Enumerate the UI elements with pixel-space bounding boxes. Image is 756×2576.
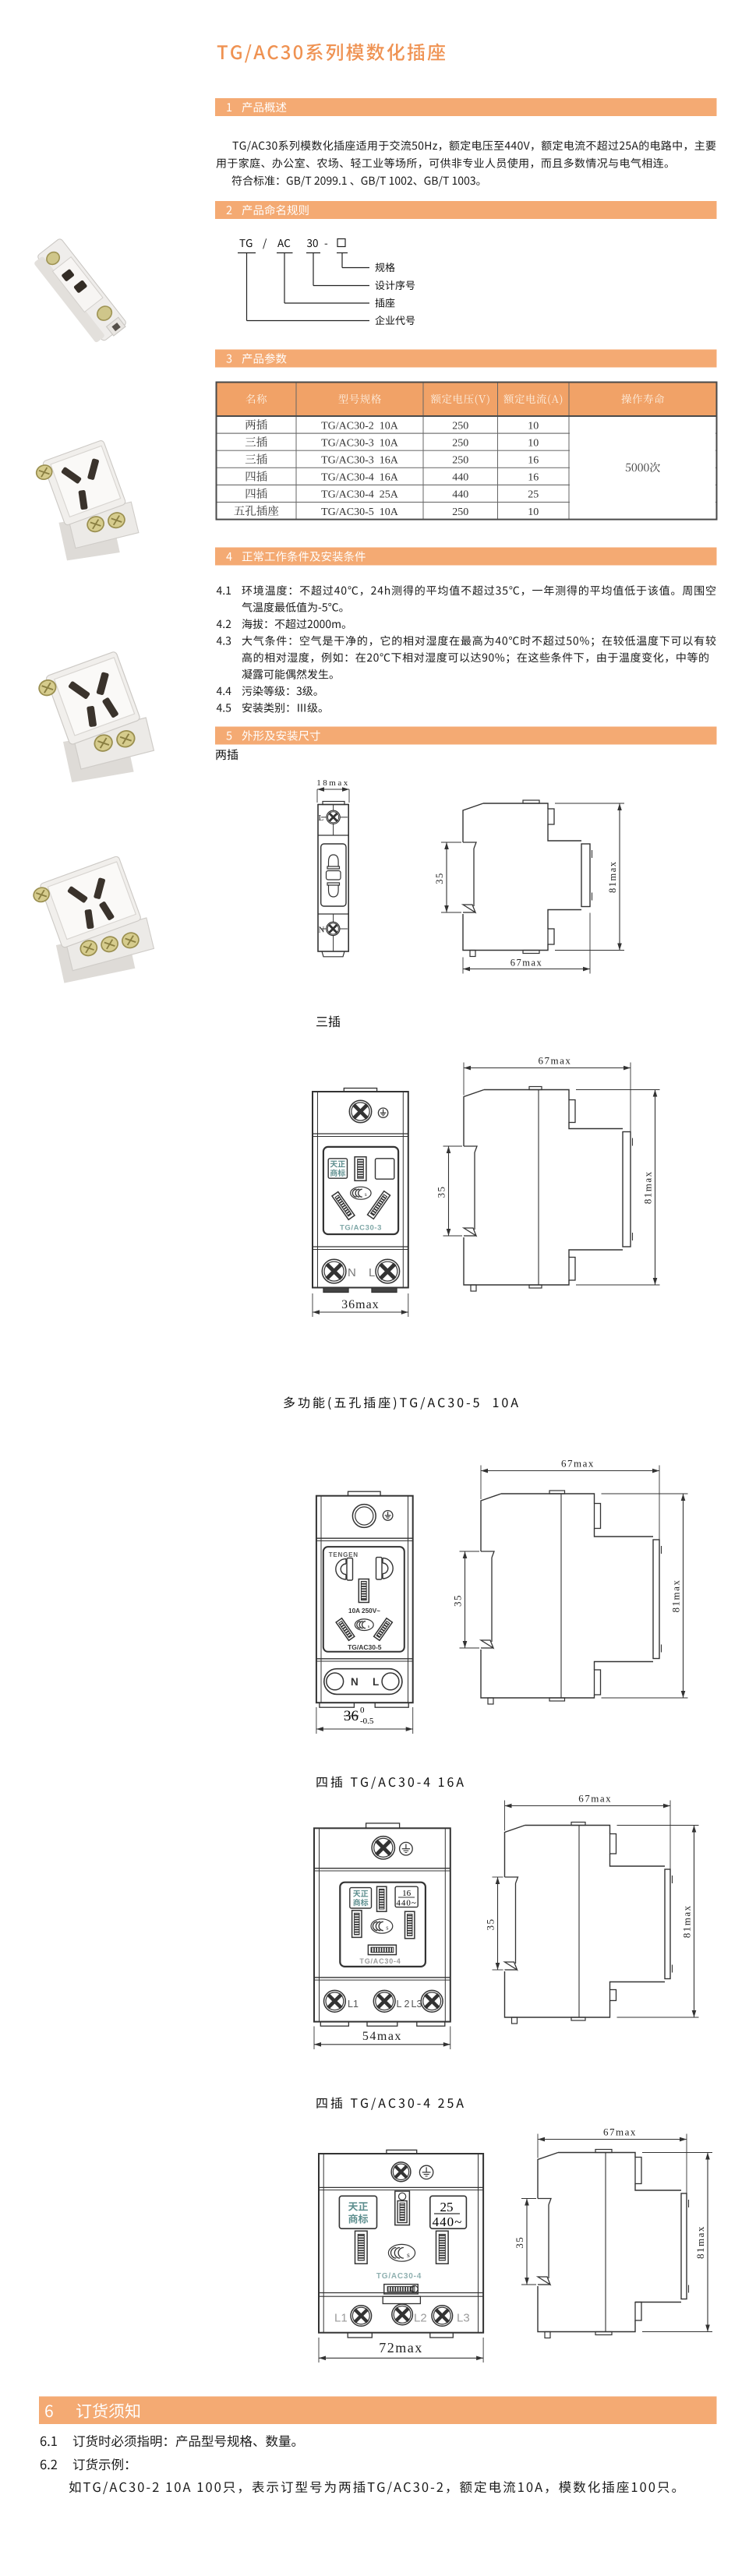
svg-text:25: 25	[528, 489, 539, 501]
svg-text:10: 10	[528, 420, 539, 432]
svg-text:TG/AC30-2 10A: TG/AC30-2 10A	[321, 420, 399, 432]
svg-text:TG/AC30-3: TG/AC30-3	[340, 1224, 382, 1233]
svg-text:16: 16	[528, 455, 539, 467]
svg-text:81max: 81max	[670, 1579, 682, 1613]
svg-text:67max: 67max	[510, 958, 543, 969]
svg-text:TG/AC30-5 10A: TG/AC30-5 10A	[321, 506, 399, 518]
svg-text:35: 35	[485, 1918, 496, 1931]
svg-text:250: 250	[452, 420, 468, 432]
svg-text:10A 250V~: 10A 250V~	[348, 1607, 380, 1614]
svg-text:L3: L3	[457, 2312, 470, 2325]
svg-text:L3: L3	[412, 1999, 422, 2010]
svg-text:250: 250	[452, 506, 468, 518]
svg-text:10: 10	[528, 506, 539, 518]
svg-text:-0.5: -0.5	[360, 1717, 374, 1726]
svg-text:0: 0	[360, 1706, 365, 1715]
svg-text:L1: L1	[334, 2312, 348, 2325]
svg-text:16: 16	[528, 472, 539, 484]
svg-text:s: s	[386, 1925, 388, 1932]
svg-text:440~: 440~	[396, 1899, 416, 1908]
svg-text:TG/AC30-4: TG/AC30-4	[376, 2272, 422, 2281]
svg-text:35: 35	[434, 872, 445, 884]
svg-text:440: 440	[452, 489, 468, 501]
svg-text:s: s	[407, 2251, 410, 2260]
svg-text:L: L	[369, 1266, 375, 1279]
svg-text:440~: 440~	[433, 2214, 463, 2229]
svg-text:s: s	[365, 1191, 367, 1198]
svg-text:TG/AC30-4: TG/AC30-4	[359, 1957, 401, 1965]
svg-text:L: L	[373, 1676, 379, 1688]
svg-text:440: 440	[452, 472, 468, 484]
svg-text:35: 35	[436, 1186, 447, 1198]
svg-text:L: L	[319, 813, 324, 823]
svg-text:TG/AC30-3 16A: TG/AC30-3 16A	[321, 455, 399, 467]
svg-text:67max: 67max	[539, 1055, 572, 1067]
svg-text:N: N	[319, 926, 325, 935]
svg-text:250: 250	[452, 437, 468, 449]
svg-text:TENGEN: TENGEN	[329, 1551, 359, 1558]
svg-text:81max: 81max	[642, 1170, 654, 1204]
svg-text:67max: 67max	[561, 1458, 595, 1470]
svg-text:N: N	[348, 1266, 356, 1279]
svg-text:81max: 81max	[681, 1904, 693, 1938]
svg-text:67max: 67max	[603, 2126, 637, 2138]
svg-text:10: 10	[528, 437, 539, 449]
svg-text:35: 35	[514, 2236, 525, 2249]
svg-text:81max: 81max	[607, 860, 618, 893]
svg-text:35: 35	[452, 1594, 464, 1607]
svg-text:L 2: L 2	[397, 1999, 410, 2010]
svg-text:72max: 72max	[379, 2340, 423, 2355]
svg-text:67max: 67max	[578, 1793, 612, 1805]
svg-text:25: 25	[440, 2200, 454, 2214]
svg-text:18max: 18max	[316, 778, 349, 788]
svg-text:54max: 54max	[362, 2030, 402, 2043]
svg-text:TG/AC30-4 25A: TG/AC30-4 25A	[321, 489, 399, 501]
svg-text:36max: 36max	[341, 1298, 380, 1311]
svg-text:L2: L2	[414, 2312, 427, 2325]
svg-text:N: N	[351, 1676, 359, 1688]
svg-text:TG/AC30-5: TG/AC30-5	[348, 1643, 382, 1651]
svg-text:81max: 81max	[694, 2225, 706, 2259]
svg-text:s: s	[368, 1624, 370, 1629]
svg-text:16: 16	[402, 1889, 412, 1898]
svg-text:TG/AC30-4 16A: TG/AC30-4 16A	[321, 472, 399, 484]
svg-text:250: 250	[452, 455, 468, 467]
svg-text:TG/AC30-3 10A: TG/AC30-3 10A	[321, 437, 399, 449]
svg-text:L1: L1	[348, 1999, 359, 2010]
